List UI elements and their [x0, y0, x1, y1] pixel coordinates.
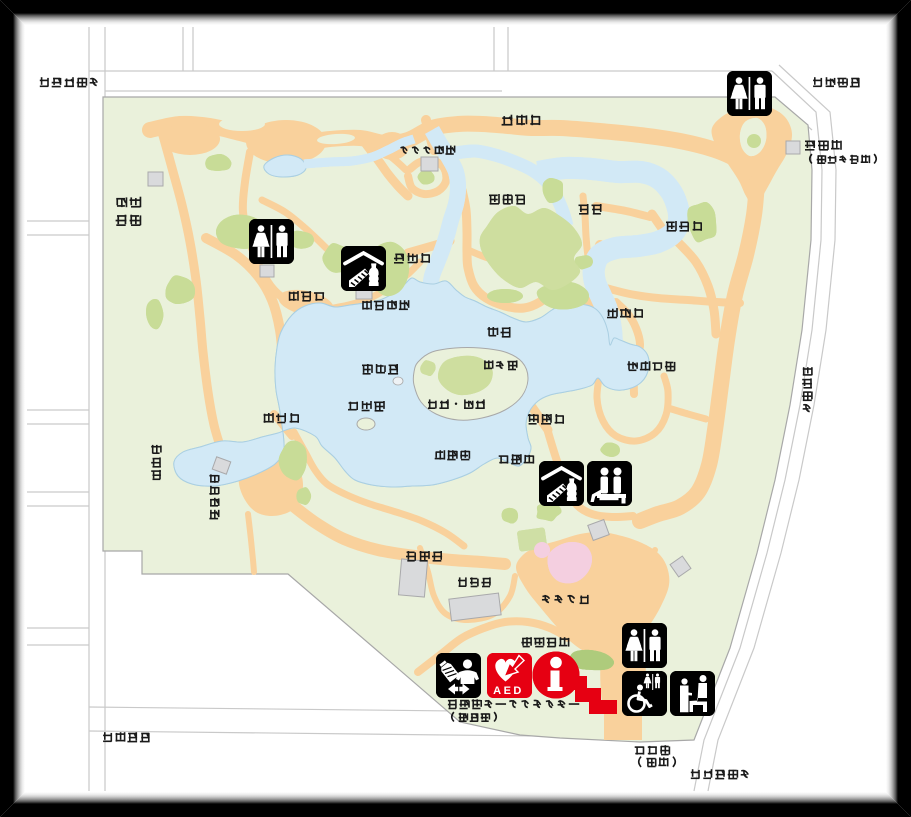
svg-text:AED: AED [493, 685, 524, 697]
